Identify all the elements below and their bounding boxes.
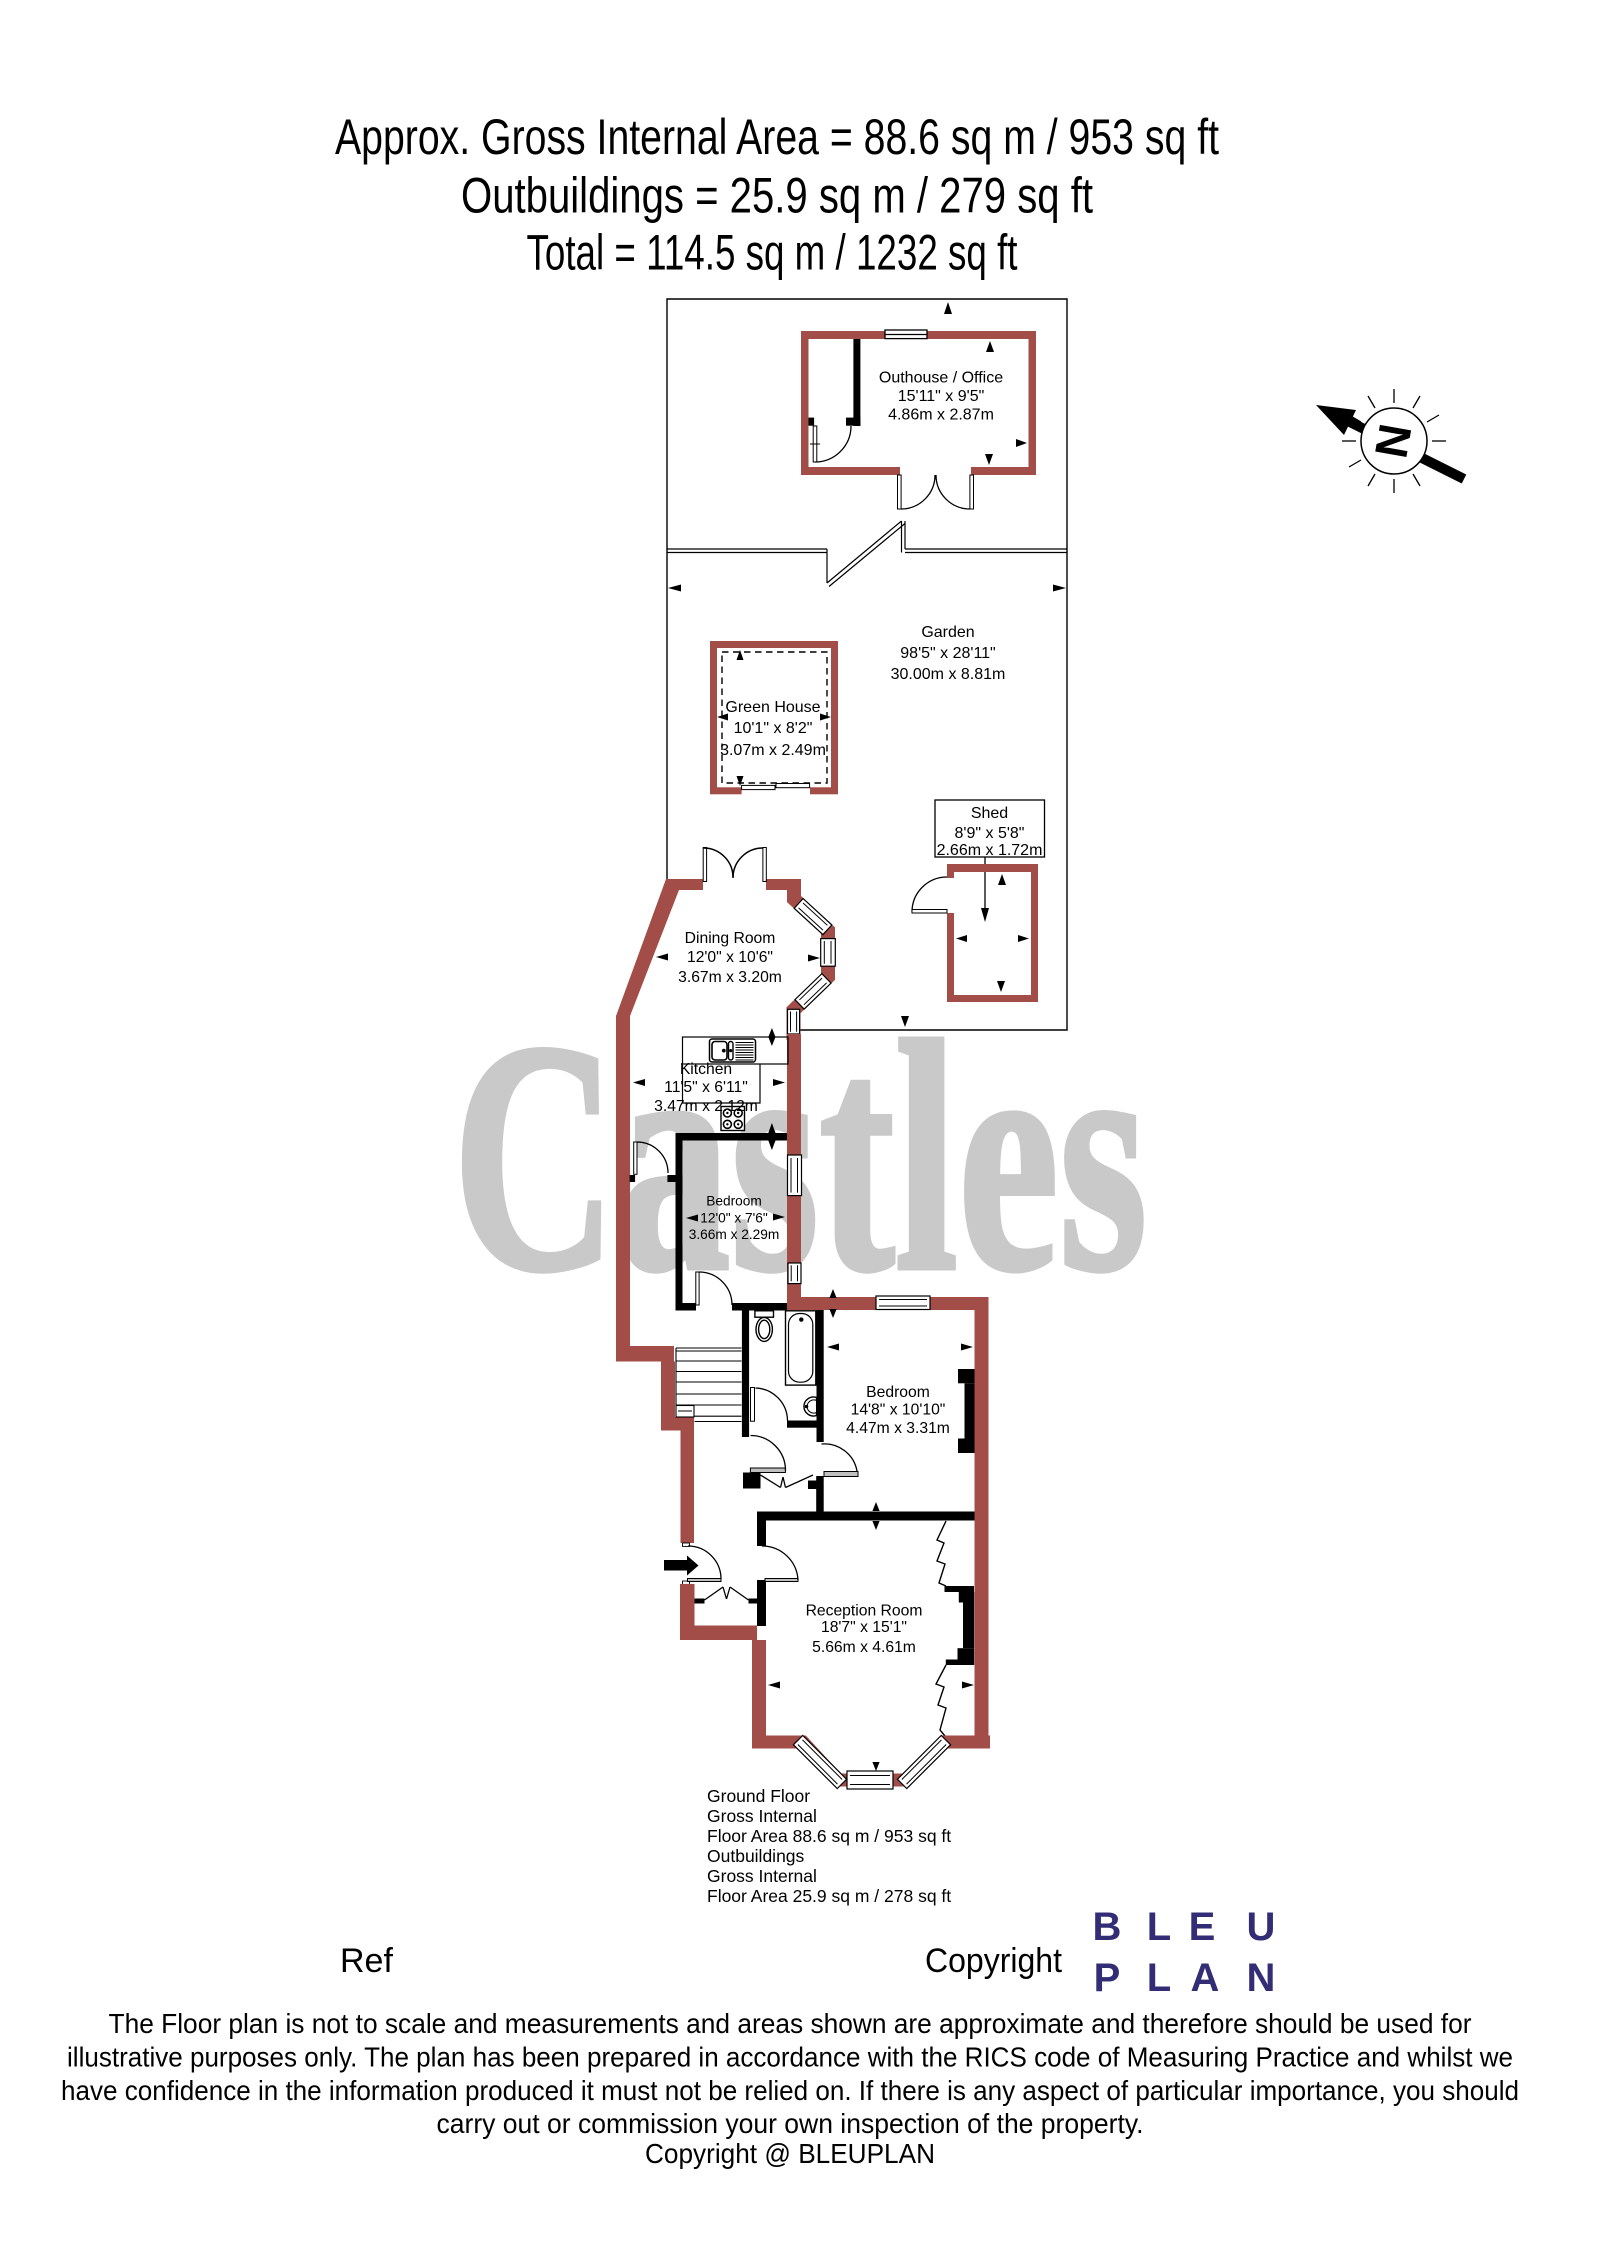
svg-text:Green House: Green House xyxy=(725,699,820,716)
svg-text:Kitchen: Kitchen xyxy=(680,1061,732,1078)
svg-text:Outbuildings = 25.9 sq m / 279: Outbuildings = 25.9 sq m / 279 sq ft xyxy=(461,168,1093,224)
svg-text:12'0" x 10'6": 12'0" x 10'6" xyxy=(687,949,773,966)
svg-text:Floor Area 88.6 sq m / 953 sq: Floor Area 88.6 sq m / 953 sq ft xyxy=(707,1826,951,1846)
svg-text:98'5" x 28'11": 98'5" x 28'11" xyxy=(900,645,995,662)
svg-text:illustrative purposes only. Th: illustrative purposes only. The plan has… xyxy=(67,2042,1513,2073)
svg-text:E: E xyxy=(1189,1905,1216,1949)
svg-text:Approx. Gross Internal Area =: Approx. Gross Internal Area = 88.6 sq m … xyxy=(335,109,1219,165)
svg-text:Ground Floor: Ground Floor xyxy=(707,1786,810,1806)
svg-text:Floor Area 25.9 sq m / 278 sq: Floor Area 25.9 sq m / 278 sq ft xyxy=(707,1886,951,1906)
svg-text:The Floor plan is not to scale: The Floor plan is not to scale and measu… xyxy=(109,2008,1472,2039)
svg-text:Outbuildings: Outbuildings xyxy=(707,1846,805,1866)
svg-text:B: B xyxy=(1093,1905,1122,1949)
svg-text:12'0" x 7'6": 12'0" x 7'6" xyxy=(700,1211,768,1226)
svg-text:Reception Room: Reception Room xyxy=(806,1603,923,1620)
svg-text:Copyright: Copyright xyxy=(925,1942,1063,1980)
svg-text:8'9" x 5'8": 8'9" x 5'8" xyxy=(955,825,1025,842)
svg-text:carry out or commission your o: carry out or commission your own inspect… xyxy=(437,2108,1144,2139)
svg-text:18'7" x 15'1": 18'7" x 15'1" xyxy=(821,1619,907,1636)
svg-text:3.66m x 2.29m: 3.66m x 2.29m xyxy=(689,1227,780,1242)
svg-text:Copyright @ BLEUPLAN: Copyright @ BLEUPLAN xyxy=(645,2138,935,2169)
svg-text:15'11" x 9'5": 15'11" x 9'5" xyxy=(898,388,985,405)
svg-text:have confidence in the informa: have confidence in the information produ… xyxy=(61,2075,1519,2106)
svg-text:3.07m x 2.49m: 3.07m x 2.49m xyxy=(720,742,826,759)
svg-text:L: L xyxy=(1147,1905,1171,1949)
svg-text:Outhouse / Office: Outhouse / Office xyxy=(879,370,1003,387)
svg-text:Bedroom: Bedroom xyxy=(706,1194,762,1209)
svg-text:11'5" x 6'11": 11'5" x 6'11" xyxy=(664,1079,748,1096)
svg-text:Ref: Ref xyxy=(340,1942,393,1980)
svg-text:14'8" x 10'10": 14'8" x 10'10" xyxy=(851,1402,946,1419)
svg-text:Total = 114.5 sq m / 1232 sq f: Total = 114.5 sq m / 1232 sq ft xyxy=(527,225,1018,281)
svg-text:5.66m x 4.61m: 5.66m x 4.61m xyxy=(812,1639,916,1656)
svg-text:U: U xyxy=(1247,1905,1276,1949)
svg-text:Gross Internal: Gross Internal xyxy=(707,1806,817,1826)
svg-text:Shed: Shed xyxy=(971,805,1008,822)
svg-text:A: A xyxy=(1191,1956,1220,2000)
svg-text:Dining Room: Dining Room xyxy=(685,930,776,947)
svg-text:L: L xyxy=(1147,1956,1171,2000)
svg-text:N: N xyxy=(1247,1956,1276,2000)
svg-text:Bedroom: Bedroom xyxy=(866,1384,930,1401)
svg-text:3.67m x 3.20m: 3.67m x 3.20m xyxy=(678,969,782,986)
svg-text:Garden: Garden xyxy=(921,624,974,641)
svg-text:4.47m x 3.31m: 4.47m x 3.31m xyxy=(846,1420,950,1437)
svg-text:Gross Internal: Gross Internal xyxy=(707,1866,817,1886)
svg-text:10'1" x 8'2": 10'1" x 8'2" xyxy=(734,720,813,737)
svg-text:30.00m x 8.81m: 30.00m x 8.81m xyxy=(891,666,1006,683)
svg-text:4.86m x 2.87m: 4.86m x 2.87m xyxy=(888,407,994,424)
svg-text:P: P xyxy=(1094,1956,1121,2000)
svg-text:2.66m x 1.72m: 2.66m x 1.72m xyxy=(937,842,1043,859)
svg-text:3.47m x 2.12m: 3.47m x 2.12m xyxy=(654,1098,758,1115)
